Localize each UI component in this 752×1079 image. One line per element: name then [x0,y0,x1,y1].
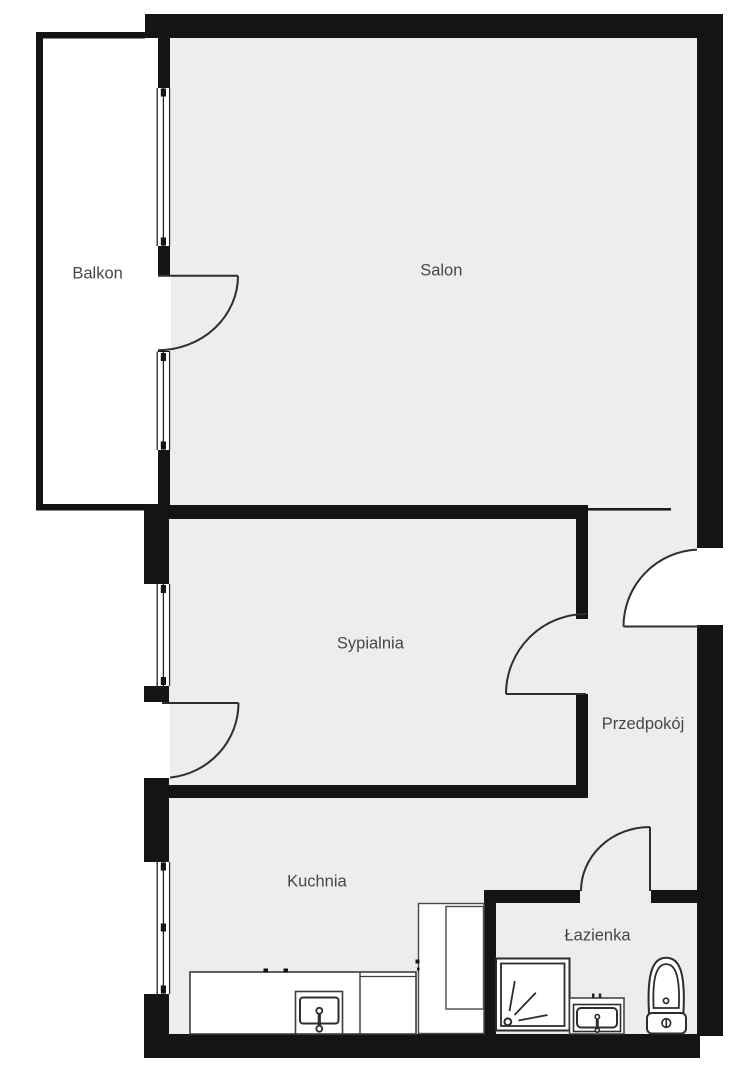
svg-text:Łazienka: Łazienka [564,927,631,945]
svg-text:Balkon: Balkon [72,265,122,283]
svg-text:Kuchnia: Kuchnia [287,873,347,891]
svg-text:Salon: Salon [420,262,462,280]
svg-text:Sypialnia: Sypialnia [337,635,405,653]
svg-text:Przedpokój: Przedpokój [602,715,685,733]
